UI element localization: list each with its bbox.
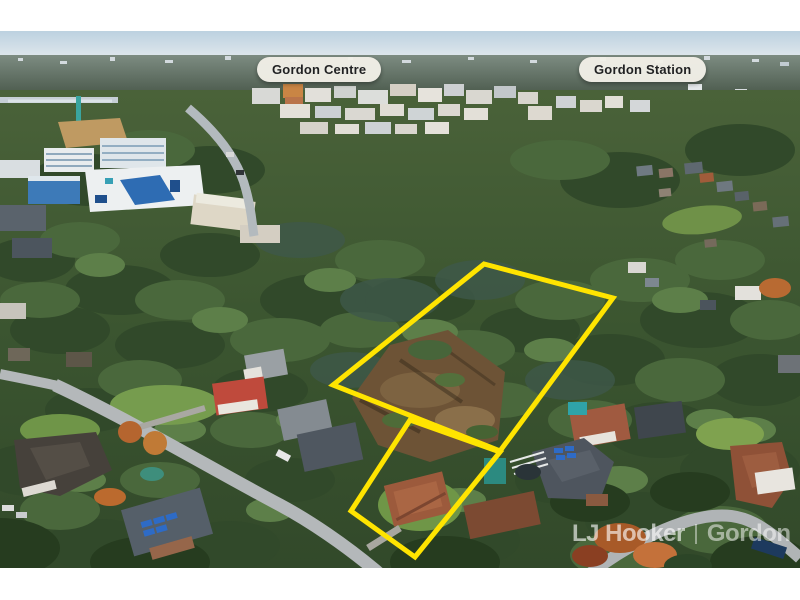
map-label-text: Gordon Centre: [272, 62, 366, 77]
aerial-scene: [0, 31, 800, 568]
gordon-centre-building: [85, 165, 205, 212]
aerial-photo: Gordon Centre Gordon Station LJ Hooker G…: [0, 31, 800, 568]
autumn-tree: [118, 421, 142, 443]
dark-roof-house: [634, 401, 686, 439]
office-building: [100, 138, 166, 168]
autumn-tree: [759, 278, 791, 298]
watermark-office: Gordon: [707, 520, 791, 548]
autumn-tree: [94, 488, 126, 506]
watermark-brand: LJ Hooker: [572, 520, 685, 548]
autumn-tree: [572, 545, 608, 567]
small-pool: [140, 467, 164, 481]
trampoline: [515, 464, 541, 480]
watermark-divider: [695, 524, 697, 544]
map-label-gordon-station: Gordon Station: [579, 57, 706, 82]
office-building: [44, 148, 94, 172]
autumn-tree: [143, 431, 167, 455]
agency-watermark: LJ Hooker Gordon: [572, 520, 791, 548]
pool: [568, 402, 587, 415]
blue-building: [28, 178, 80, 204]
map-label-text: Gordon Station: [594, 62, 691, 77]
map-label-gordon-centre: Gordon Centre: [257, 57, 381, 82]
real-estate-aerial-listing-photo: { "annotations": { "labels": [ { "text":…: [0, 0, 800, 600]
